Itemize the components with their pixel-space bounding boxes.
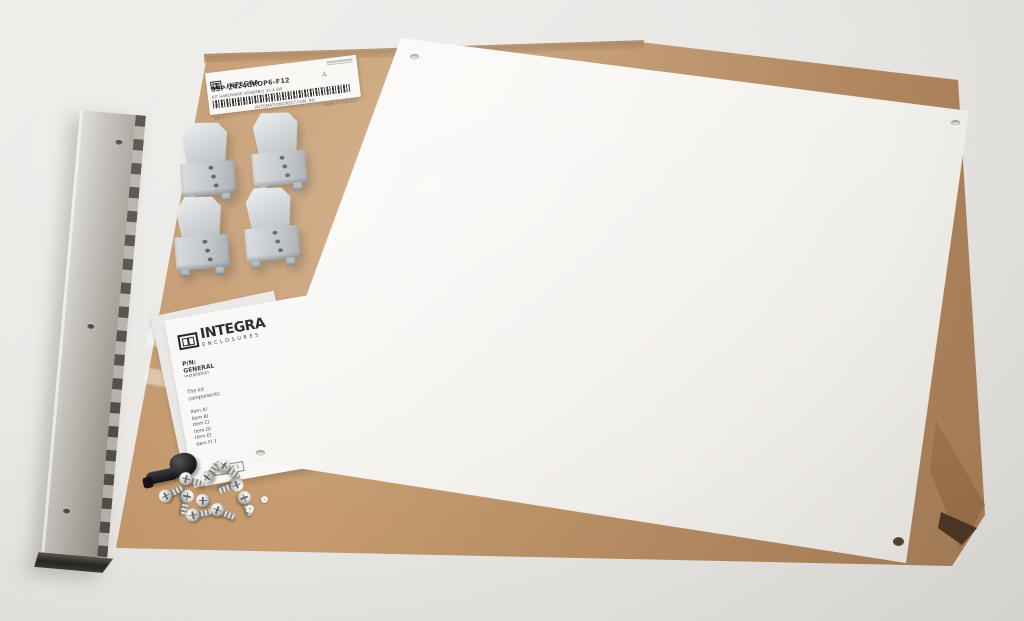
warning-triangle-icon: ⚠ (321, 71, 327, 79)
nylon-washer (246, 505, 254, 513)
panel-hole-bottom-left (256, 450, 265, 456)
label-warning-lines (326, 57, 353, 66)
mounting-clip-1 (177, 120, 236, 204)
panel-hole-top-left (410, 54, 419, 60)
integra-logo-icon (177, 332, 199, 350)
product-photo: INTEGRA ⚠ SSP-2424GROP6-F12 KIT HARDWARE… (0, 0, 1024, 621)
mounting-clip-2 (248, 110, 309, 194)
clip-foot (215, 266, 225, 275)
panel-hole-bottom-right (893, 537, 904, 546)
mounting-clip-3 (171, 194, 230, 278)
clip-foot (286, 257, 296, 266)
clip-foot (180, 269, 190, 278)
mounting-clip-4 (241, 185, 302, 269)
integra-logo-icon (210, 80, 222, 89)
panel-hole-top-right (951, 120, 960, 126)
nylon-washer (261, 496, 268, 503)
clip-foot (251, 260, 261, 269)
